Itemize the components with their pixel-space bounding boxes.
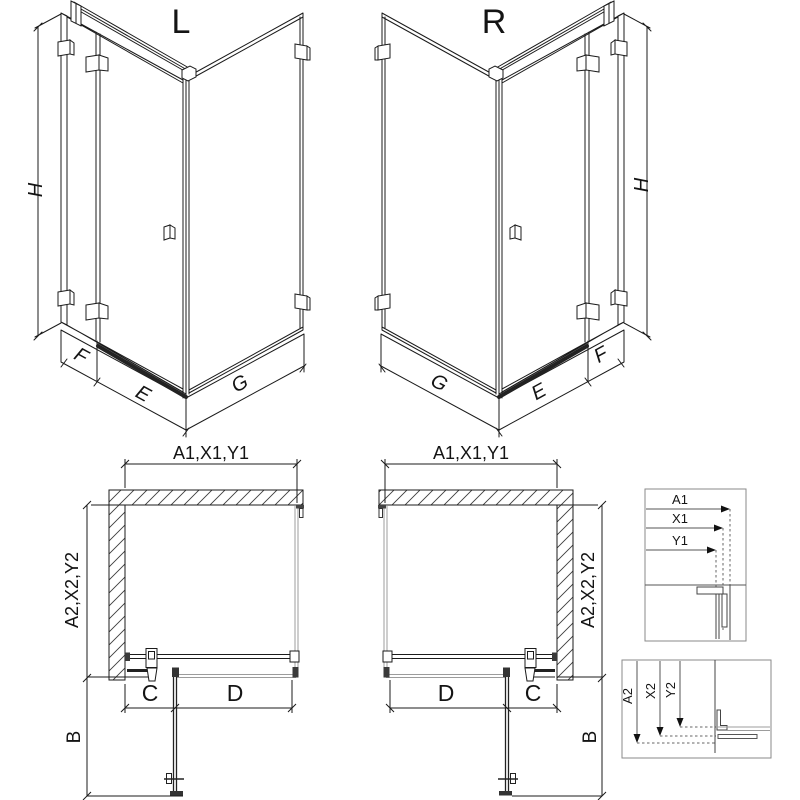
plan-left-swing-dim-label: B [64, 731, 85, 744]
plan-view-right: A1,X1,Y1 A2,X2,Y2 D C B [378, 443, 606, 800]
detail-box-width-profile: A1 X1 Y1 [645, 489, 746, 641]
drawing-canvas: L H F E G R H G E F A1,X1,Y1 A2,X2,Y2 C … [0, 0, 800, 800]
a1-arrowhead [721, 506, 730, 513]
plan-right-door-width-label: D [438, 680, 455, 706]
plan-left-width-dim-label: A1,X1,Y1 [173, 443, 249, 463]
detail-y2-label: Y2 [663, 682, 678, 698]
plan-left-fixed-width-label: C [142, 680, 159, 706]
iso-view-right: R H G E F [375, 1, 653, 437]
a2-arrowhead [634, 734, 641, 743]
iso-left-side-dim-label: G [228, 371, 252, 398]
detail-a1-label: A1 [672, 492, 688, 507]
shower-enclosure-dimension-drawing: L H F E G R H G E F A1,X1,Y1 A2,X2,Y2 C … [0, 0, 800, 800]
plan-left-depth-dim-label: A2,X2,Y2 [62, 552, 82, 628]
iso-view-left: L H F E G [25, 1, 310, 437]
iso-left-door-dim-label: E [132, 381, 155, 407]
plan-right-depth-dim-label: A2,X2,Y2 [578, 552, 598, 628]
detail-box-depth-profile: A2 X2 Y2 [620, 660, 771, 758]
plan-right-swing-dim-label: B [580, 731, 601, 744]
iso-left-height-dim-label: H [25, 182, 47, 197]
plan-left-vertical-dims [83, 501, 183, 800]
y2-arrowhead [677, 718, 684, 727]
plan-left-door-width-label: D [227, 680, 244, 706]
plan-right-fixed-width-label: C [525, 680, 542, 706]
wall-band-top [379, 490, 573, 505]
wall-profile-section [722, 594, 727, 627]
plan-view-left: A1,X1,Y1 A2,X2,Y2 C D B [62, 443, 304, 800]
detail-y1-label: Y1 [672, 533, 688, 548]
y1-arrowhead [707, 547, 716, 554]
iso-left-fixed-dim-label: F [70, 343, 93, 369]
x1-arrowhead [714, 525, 723, 532]
detail-x1-label: X1 [672, 511, 688, 526]
detail-x2-label: X2 [643, 683, 658, 699]
iso-right-fixed-dim-label: F [590, 342, 613, 368]
iso-left-label: L [172, 3, 191, 41]
wall-band-left [109, 505, 125, 680]
detail-box-border [645, 489, 746, 641]
rail-section-bar [718, 735, 757, 739]
wall-band-top [109, 490, 303, 505]
plan-right-width-dim-label: A1,X1,Y1 [433, 443, 509, 463]
detail-a2-label: A2 [620, 688, 635, 704]
iso-right-height-dim-label: H [631, 177, 653, 192]
iso-right-door-dim-label: E [528, 379, 551, 405]
glass-section-bar [697, 587, 723, 594]
x2-arrowhead [657, 727, 664, 736]
iso-right-label: R [482, 3, 507, 41]
wall-band-right [557, 505, 573, 680]
